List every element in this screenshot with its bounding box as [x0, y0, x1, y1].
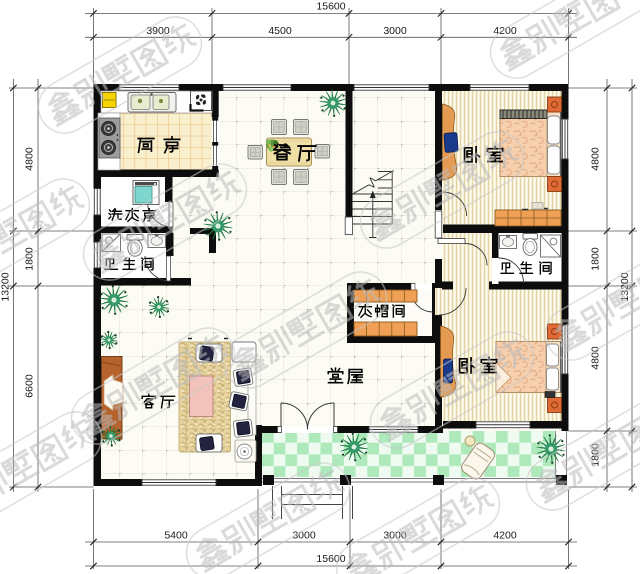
svg-text:4800: 4800	[24, 147, 36, 171]
svg-text:13200: 13200	[0, 272, 12, 301]
svg-text:15600: 15600	[316, 1, 345, 13]
svg-text:5400: 5400	[164, 530, 188, 542]
svg-text:1800: 1800	[590, 247, 602, 271]
svg-text:1800: 1800	[24, 247, 36, 271]
svg-text:15600: 15600	[316, 553, 345, 565]
svg-text:6600: 6600	[24, 374, 36, 398]
svg-text:3000: 3000	[383, 25, 407, 37]
svg-text:4500: 4500	[268, 25, 292, 37]
svg-text:4800: 4800	[590, 147, 602, 171]
svg-text:4200: 4200	[493, 530, 517, 542]
